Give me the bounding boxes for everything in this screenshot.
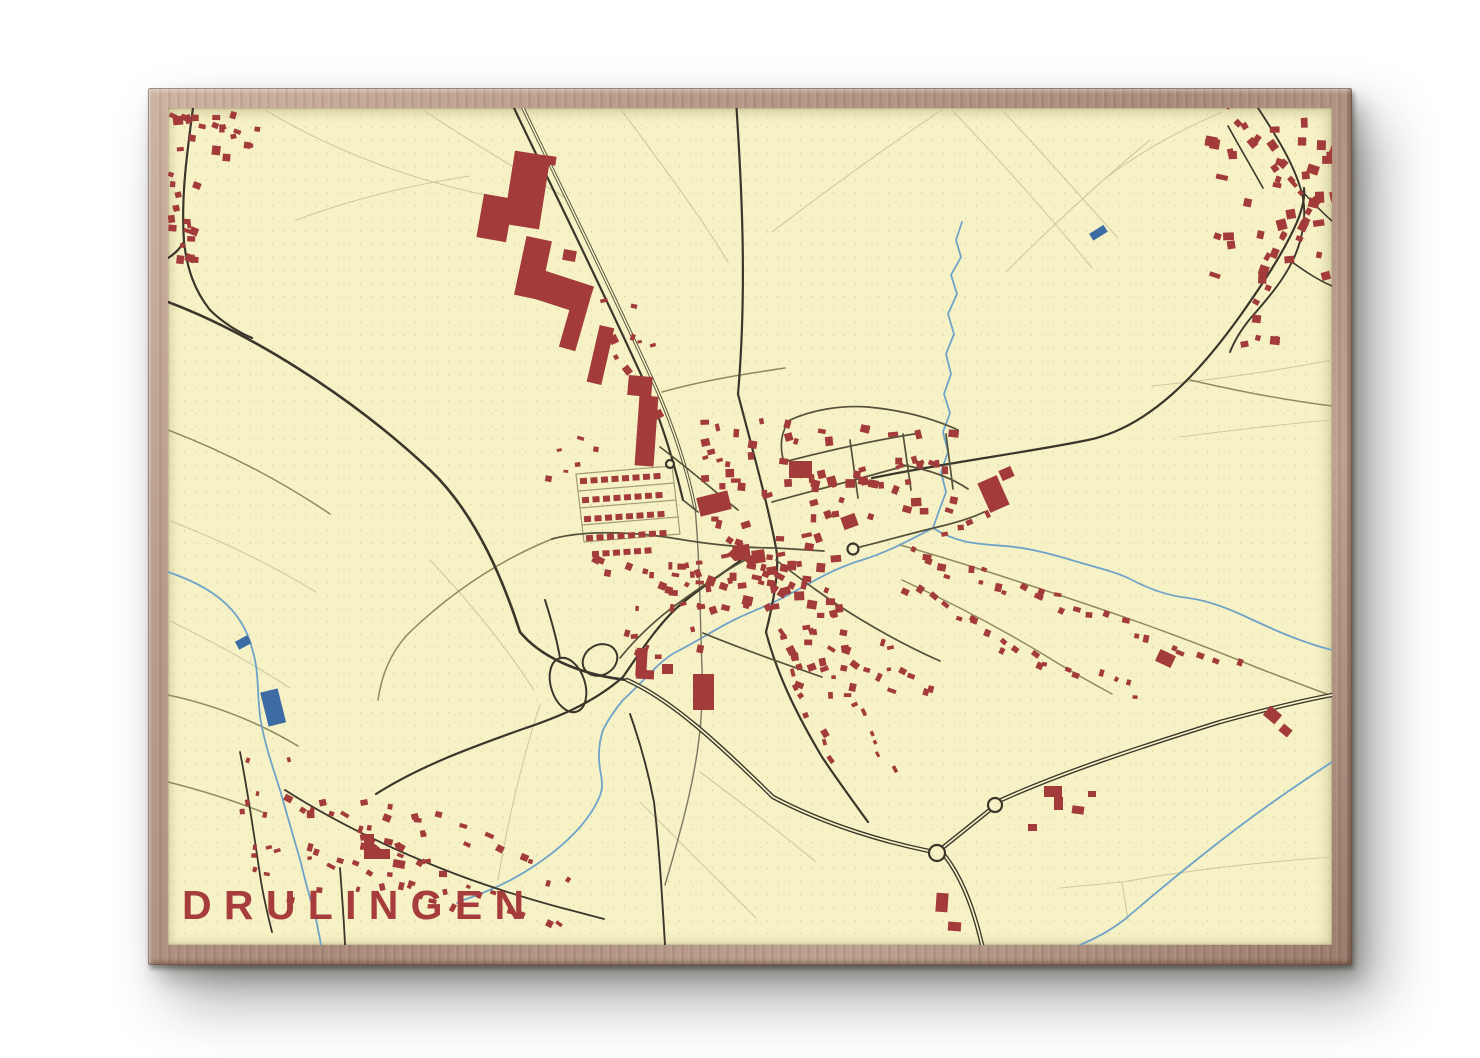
water-layer	[168, 222, 1332, 945]
map-paper: DRULINGEN	[168, 108, 1332, 945]
drulingen-map	[168, 108, 1332, 945]
ponds-layer	[235, 225, 1108, 727]
framed-map-poster: DRULINGEN	[148, 88, 1352, 965]
buildings-layer	[168, 108, 1332, 931]
bypass-centerline	[627, 680, 1332, 945]
map-title: DRULINGEN	[182, 882, 536, 929]
field-lines-layer	[168, 108, 1332, 920]
minor-roads-layer	[168, 368, 1332, 812]
